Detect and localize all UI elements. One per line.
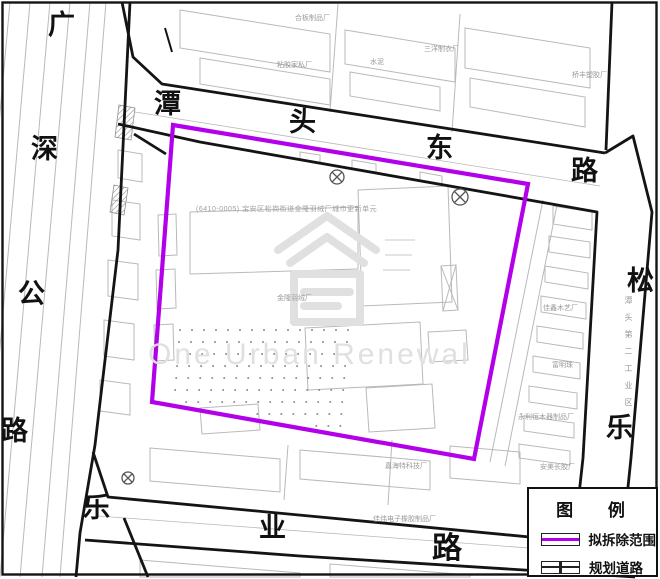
factory-label: 水泥 — [370, 59, 384, 66]
legend-item-label: 规划道路 — [589, 557, 643, 577]
road-label-top-4: 路 — [571, 158, 598, 185]
industrial-zone-label: 潭头第二工业区 — [624, 296, 632, 415]
legend-title: 图 例 — [529, 496, 656, 521]
factory-label: 富明珠 — [552, 362, 573, 369]
road-label-right-1: 松 — [627, 268, 654, 295]
demolition-extent-symbol — [541, 533, 580, 546]
factory-label: 安美长胶厂 — [540, 464, 575, 471]
road-label-left-2: 深 — [31, 136, 58, 163]
renewal-unit-label: (6410-0005) 宝安区松岗街道金隆羽绒厂城市更新单元 — [196, 204, 377, 214]
road-label-left-3: 公 — [18, 281, 45, 308]
road-label-bottom-2: 业 — [259, 515, 286, 542]
factory-label: 合板制品厂 — [295, 15, 330, 22]
road-label-right-2: 乐 — [606, 415, 633, 442]
braced-bay — [441, 265, 458, 311]
road-label-bottom-1: 乐 — [83, 495, 110, 522]
factory-label: 永利恒木器制品厂 — [518, 414, 574, 421]
manhole-icons — [122, 170, 468, 484]
factory-label: 佳鑫木艺厂 — [543, 305, 578, 312]
factory-label: 三洋制衣厂 — [424, 46, 459, 53]
planning-map: 潭 头 东 路 广 深 公 路 松 乐 乐 业 路 (6410-0005) 宝安… — [0, 0, 660, 579]
road-label-top-2: 头 — [289, 109, 316, 136]
road-label-left-1: 广 — [48, 12, 75, 39]
factory-label: 佳伟电子橡胶制品厂 — [373, 516, 436, 523]
watermark-text: One Urban Renewal — [148, 338, 471, 372]
watermark-logo — [278, 216, 376, 322]
manhole-icon — [330, 170, 344, 184]
manhole-icon — [122, 472, 134, 484]
factory-label: 嘉海特科技厂 — [385, 463, 427, 470]
factory-label: 金隆羽绒厂 — [277, 295, 312, 302]
factory-label: 粘胶家私厂 — [277, 62, 312, 69]
road-label-bottom-3: 路 — [432, 534, 462, 564]
road-label-top-3: 东 — [426, 135, 453, 162]
legend-item-label: 拟拆除范围 — [589, 529, 657, 549]
road-label-top-1: 潭 — [154, 91, 181, 118]
legend-box: 图 例 拟拆除范围 规划道路 — [527, 487, 658, 577]
manhole-icon — [452, 189, 468, 205]
planned-road-symbol — [541, 561, 580, 574]
legend-item-demolition: 拟拆除范围 — [541, 529, 656, 549]
legend-item-planned-road: 规划道路 — [541, 557, 656, 577]
factory-label: 桥丰塑胶厂 — [572, 72, 607, 79]
road-label-left-4: 路 — [1, 418, 28, 445]
